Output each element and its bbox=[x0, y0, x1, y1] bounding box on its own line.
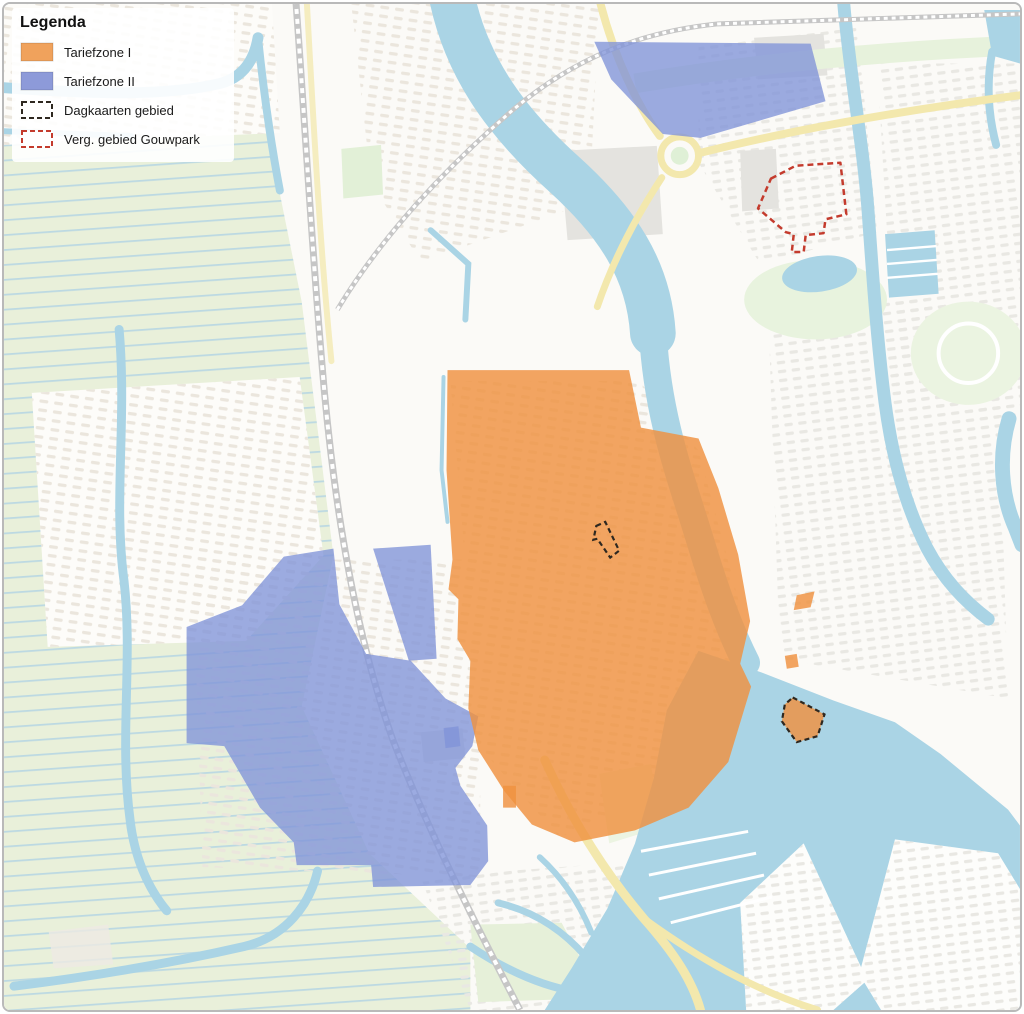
dagkaarten-swatch bbox=[20, 100, 54, 120]
tariefzone-1-swatch bbox=[20, 42, 54, 62]
roundabout-center bbox=[671, 147, 689, 165]
legend-label: Verg. gebied Gouwpark bbox=[64, 132, 200, 147]
tariefzone-2-small bbox=[444, 726, 461, 748]
tariefzone-1-small-2 bbox=[785, 654, 799, 669]
legend-label: Tariefzone II bbox=[64, 74, 135, 89]
legend-item-dagkaarten: Dagkaarten gebied bbox=[20, 100, 228, 120]
map-screenshot-frame: Legenda Tariefzone I Tariefzone II Dagka… bbox=[2, 2, 1022, 1012]
legend-item-tariefzone-1: Tariefzone I bbox=[20, 42, 228, 62]
legend-label: Tariefzone I bbox=[64, 45, 131, 60]
tariefzone-2-swatch bbox=[20, 71, 54, 91]
legend: Legenda Tariefzone I Tariefzone II Dagka… bbox=[12, 8, 234, 162]
legend-item-gouwpark: Verg. gebied Gouwpark bbox=[20, 129, 228, 149]
gouwpark-swatch bbox=[20, 129, 54, 149]
legend-title: Legenda bbox=[20, 14, 228, 32]
tariefzone-1-small-3 bbox=[503, 786, 516, 808]
legend-label: Dagkaarten gebied bbox=[64, 103, 174, 118]
legend-item-tariefzone-2: Tariefzone II bbox=[20, 71, 228, 91]
